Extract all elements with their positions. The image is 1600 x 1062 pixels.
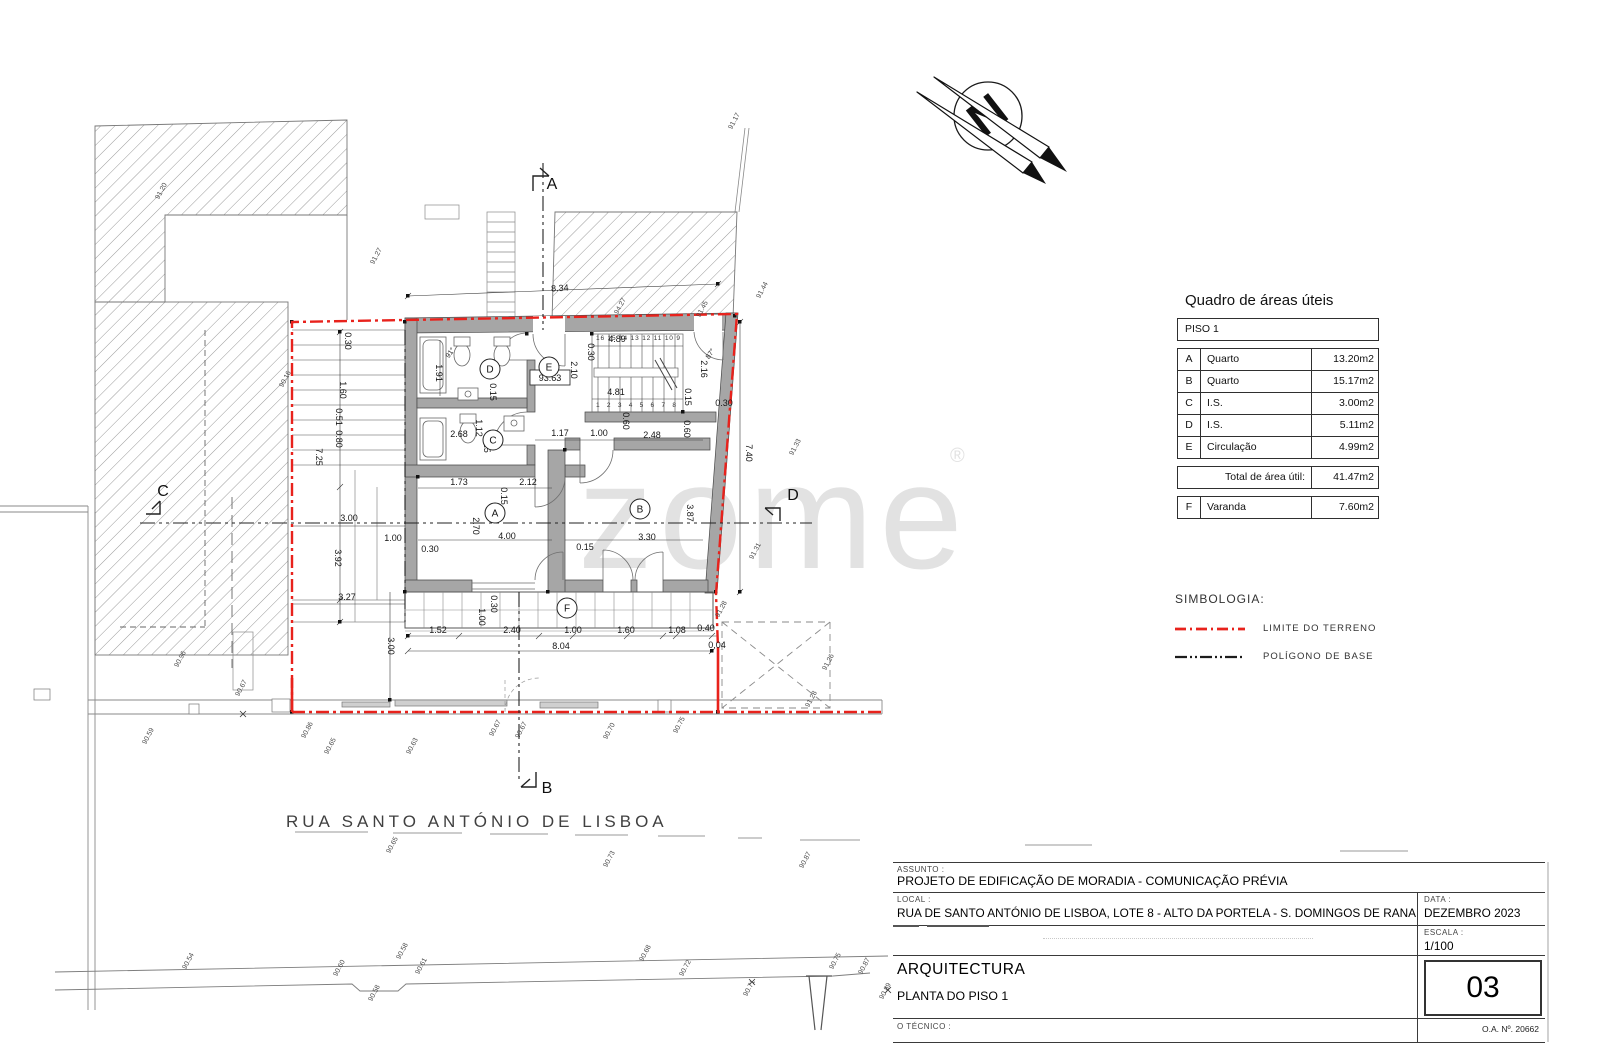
dimension-label: 8.04	[552, 641, 570, 651]
dimension-label: 1.17	[551, 428, 569, 438]
dimension-label: 1.00	[590, 428, 608, 438]
table-row: F Varanda 7.60m2	[1178, 497, 1378, 518]
escala-value: 1/100	[1424, 939, 1454, 953]
drawing-sheet: zome ®	[0, 0, 1600, 1062]
section-marker-letter: B	[542, 780, 553, 797]
table-row: D I.S. 5.11m2	[1178, 414, 1378, 436]
dimension-label: 0.15	[488, 383, 498, 401]
dimension-label: 1.00	[564, 625, 582, 635]
areas-table-total-row: Total de área útil: 41.47m2	[1177, 466, 1379, 489]
dimension-label: 8.34	[551, 283, 569, 294]
legend-item: POLÍGONO DE BASE	[1175, 651, 1376, 662]
assunto-label: ASSUNTO :	[897, 865, 944, 874]
dimension-label: 0.15	[499, 487, 509, 505]
elevation-label: 90.59	[141, 727, 155, 746]
oa-number: O.A. Nº. 20662	[1482, 1024, 1539, 1034]
room-tag-letter: D	[486, 365, 493, 376]
dimension-label: 4.00	[498, 531, 516, 541]
north-arrow-icon: N	[917, 77, 1067, 184]
watermark-reg: ®	[950, 445, 965, 467]
elevation-label: 90.71	[742, 979, 756, 998]
dimension-label: 1.60	[617, 625, 635, 635]
areas-table-body: A Quarto 13.20m2 B Quarto 15.17m2 C I.S.…	[1177, 348, 1379, 459]
dimension-label: 3.87	[685, 504, 695, 522]
elevation-label: 90.75	[828, 952, 842, 971]
section-marker-letter: D	[787, 487, 799, 504]
elevation-label: 90.58	[395, 942, 409, 961]
elevation-label: 90.65	[385, 836, 399, 855]
dimension-label: 0.15	[576, 542, 594, 552]
dimension-label: 0.15	[683, 388, 693, 406]
dimension-label: 1.00	[477, 608, 487, 626]
elevation-label: 90.67	[514, 721, 528, 740]
dimension-label: 3.30	[638, 532, 656, 542]
dimension-label: 0.04	[708, 640, 726, 650]
dimension-label: 1.12	[474, 419, 484, 437]
tecnico-label: O TÉCNICO :	[897, 1022, 951, 1031]
assunto-value: PROJETO DE EDIFICAÇÃO DE MORADIA - COMUN…	[897, 874, 1288, 888]
local-label: LOCAL :	[897, 895, 931, 904]
room-tag-letter: F	[564, 604, 570, 615]
elevation-label: 91.26	[821, 653, 835, 672]
sheet-number: 03	[1424, 960, 1542, 1016]
elevation-label: 90.87	[798, 851, 812, 870]
elevation-label: 91.27	[369, 247, 383, 266]
elevation-label: 90.60	[332, 959, 346, 978]
elevation-label: 90.61	[414, 957, 428, 976]
dimension-label: 2.48	[643, 430, 661, 440]
dash-dot-line-black-icon	[1175, 654, 1245, 660]
areas-table-title: Quadro de áreas úteis	[1185, 292, 1379, 309]
table-row: B Quarto 15.17m2	[1178, 370, 1378, 392]
dimension-label: 0.51	[334, 408, 344, 426]
section-marker-letter: C	[157, 483, 169, 500]
table-row: E Circulação 4.99m2	[1178, 436, 1378, 458]
dimension-label: 0.30	[343, 332, 353, 350]
elevation-label: 91.28	[714, 600, 728, 619]
dimension-label: 3.00	[386, 637, 396, 655]
elevation-label: 90.58	[367, 984, 381, 1003]
dimension-label: 0.30	[586, 343, 596, 361]
elevation-label: 90.65	[323, 737, 337, 756]
table-row: A Quarto 13.20m2	[1178, 349, 1378, 370]
escala-label: ESCALA :	[1424, 928, 1464, 937]
areas-table-group-header: PISO 1	[1177, 318, 1379, 341]
dimension-label: 0.60	[621, 412, 631, 430]
data-value: DEZEMBRO 2023	[1424, 906, 1520, 920]
dimension-label: 2.40	[503, 625, 521, 635]
dimension-label: 0.30	[489, 595, 499, 613]
dimension-label: 4.81	[607, 387, 625, 397]
dimension-label: 0.30	[421, 544, 439, 554]
data-label: DATA :	[1424, 895, 1451, 904]
room-tag-letter: E	[546, 363, 553, 374]
elevation-label: 90.63	[405, 737, 419, 756]
dimension-label: 3.00	[340, 513, 358, 523]
elevation-label: 91.28	[804, 690, 818, 709]
elevation-label: 90.67	[234, 679, 248, 698]
section-marker-letter: A	[547, 176, 558, 193]
room-tag-letter: B	[637, 505, 644, 516]
dimension-label: 0.60	[682, 420, 692, 438]
elevation-label: 91.44	[755, 281, 769, 300]
local-value: RUA DE SANTO ANTÓNIO DE LISBOA, LOTE 8 -…	[897, 906, 1416, 920]
dimension-label: 7.25	[314, 448, 324, 466]
stair-numbers-bottom: 1 2 3 4 5 6 7 8	[596, 402, 676, 409]
areas-table-extra: F Varanda 7.60m2	[1177, 496, 1379, 519]
dimension-label: 2.68	[450, 429, 468, 439]
dimension-label: 0.80	[334, 430, 344, 448]
elevation-label: 90.73	[602, 850, 616, 869]
dimension-label: 1.60	[338, 381, 348, 399]
legend-item: LIMITE DO TERRENO	[1175, 623, 1376, 634]
dimension-label: 1.91	[434, 364, 444, 382]
street-name: RUA SANTO ANTÓNIO DE LISBOA	[286, 812, 668, 831]
dimension-label: 0.30	[715, 398, 733, 408]
discipline: ARQUITECTURA	[897, 961, 1025, 979]
legend: SIMBOLOGIA: LIMITE DO TERRENO POLÍGONO D…	[1175, 592, 1376, 662]
dimension-label: 7.40	[744, 444, 754, 462]
section-arrow-b	[521, 772, 536, 787]
elevation-label: 90.68	[638, 944, 652, 963]
elevation-label: 90.54	[181, 952, 195, 971]
dimension-label: 2.12	[519, 477, 537, 487]
dimension-label: 1.00	[384, 533, 402, 543]
sidewalk-elements	[34, 678, 671, 714]
elevation-label: 90.67	[488, 719, 502, 738]
dimension-label: 4.89	[608, 334, 626, 344]
elevation-label: 90.86	[300, 721, 314, 740]
elevation-label: 90.89	[878, 982, 892, 1001]
elevation-label: 90.75	[672, 716, 686, 735]
legend-title: SIMBOLOGIA:	[1175, 592, 1376, 606]
dimension-label: 2.10	[569, 361, 579, 379]
dimension-label: 3.27	[338, 592, 356, 602]
dimension-label: 2.70	[471, 517, 481, 535]
room-tag-letter: C	[489, 436, 496, 447]
room-tag-letter: A	[492, 509, 499, 520]
dimension-label: 0.40	[697, 623, 715, 633]
dimension-label: 1.52	[429, 625, 447, 635]
dimension-label: 1.08	[668, 625, 686, 635]
elevation-label: 91.17	[727, 112, 741, 131]
areas-table: Quadro de áreas úteis PISO 1 A Quarto 13…	[1177, 292, 1379, 519]
dimension-label: 2.16	[699, 360, 709, 378]
elevation-label: 90.72	[678, 959, 692, 978]
drawing-title: PLANTA DO PISO 1	[897, 989, 1008, 1003]
title-block: ASSUNTO : PROJETO DE EDIFICAÇÃO DE MORAD…	[893, 862, 1545, 1042]
dashed-line-red-icon	[1175, 626, 1245, 632]
dimension-label: 3.92	[333, 549, 343, 567]
dimension-label: 1.73	[450, 477, 468, 487]
table-row: C I.S. 3.00m2	[1178, 392, 1378, 414]
elevation-label: 90.70	[602, 722, 616, 741]
